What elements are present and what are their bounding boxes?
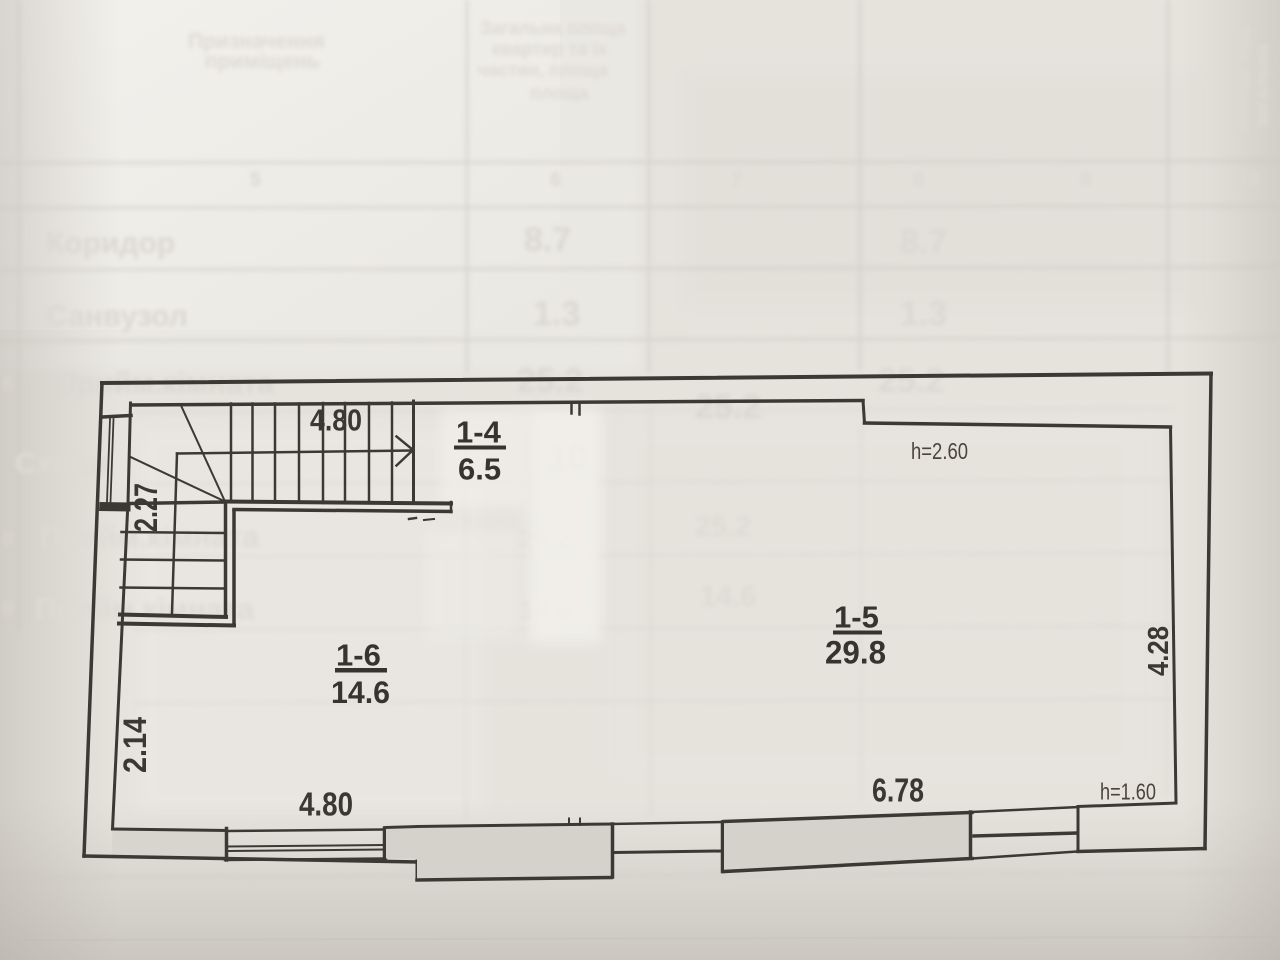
svg-text:Сходи: Сходи	[15, 447, 108, 480]
svg-text:4: 4	[2, 230, 15, 255]
svg-text:площа: площа	[530, 83, 589, 103]
svg-text:6.5: 6.5	[458, 452, 501, 487]
svg-text:4.80: 4.80	[299, 786, 353, 823]
svg-text:5: 5	[250, 169, 261, 191]
svg-text:1-5: 1-5	[834, 600, 879, 635]
svg-text:площа буд.: площа буд.	[1232, 24, 1253, 130]
svg-text:Санвузол: Санвузол	[46, 300, 188, 333]
svg-text:1.3: 1.3	[533, 295, 580, 333]
svg-text:1-6: 1-6	[336, 638, 381, 673]
svg-text:9: 9	[1080, 169, 1091, 191]
svg-text:2.27: 2.27	[128, 483, 164, 532]
svg-text:14.6: 14.6	[700, 581, 756, 613]
svg-text:Коридор: Коридор	[46, 227, 175, 260]
svg-text:Прийм.кімната: Прийм.кімната	[35, 593, 254, 626]
svg-text:8.7: 8.7	[524, 221, 571, 259]
svg-text:9: 9	[2, 597, 14, 622]
svg-text:6.78: 6.78	[872, 772, 924, 809]
svg-text:4.28: 4.28	[1143, 626, 1175, 676]
svg-text:8: 8	[2, 526, 14, 551]
svg-text:25.2: 25.2	[695, 388, 761, 426]
svg-text:7: 7	[731, 169, 742, 191]
svg-text:квартир та їх: квартир та їх	[492, 39, 607, 59]
svg-text:25.2: 25.2	[695, 511, 751, 543]
svg-text:6: 6	[550, 169, 561, 191]
svg-text:25.2: 25.2	[878, 362, 944, 400]
svg-text:1.3: 1.3	[900, 295, 947, 333]
svg-text:загальна: загальна	[1252, 44, 1273, 128]
svg-text:8.7: 8.7	[900, 223, 947, 261]
svg-text:частин, площа: частин, площа	[478, 60, 609, 80]
svg-text:14.6: 14.6	[331, 674, 390, 710]
svg-text:приміщень: приміщень	[205, 50, 320, 73]
svg-text:8: 8	[913, 169, 924, 191]
svg-text:4.80: 4.80	[310, 403, 362, 438]
svg-text:5: 5	[2, 303, 14, 328]
svg-text:Загальна площа: Загальна площа	[480, 18, 627, 38]
svg-text:1-4: 1-4	[456, 415, 502, 450]
svg-text:h=2.60: h=2.60	[911, 438, 968, 464]
svg-text:6: 6	[2, 371, 14, 396]
svg-text:h=1.60: h=1.60	[1100, 779, 1156, 805]
svg-text:10: 10	[1238, 169, 1260, 191]
svg-text:2.14: 2.14	[117, 717, 153, 773]
svg-text:29.8: 29.8	[825, 635, 886, 671]
